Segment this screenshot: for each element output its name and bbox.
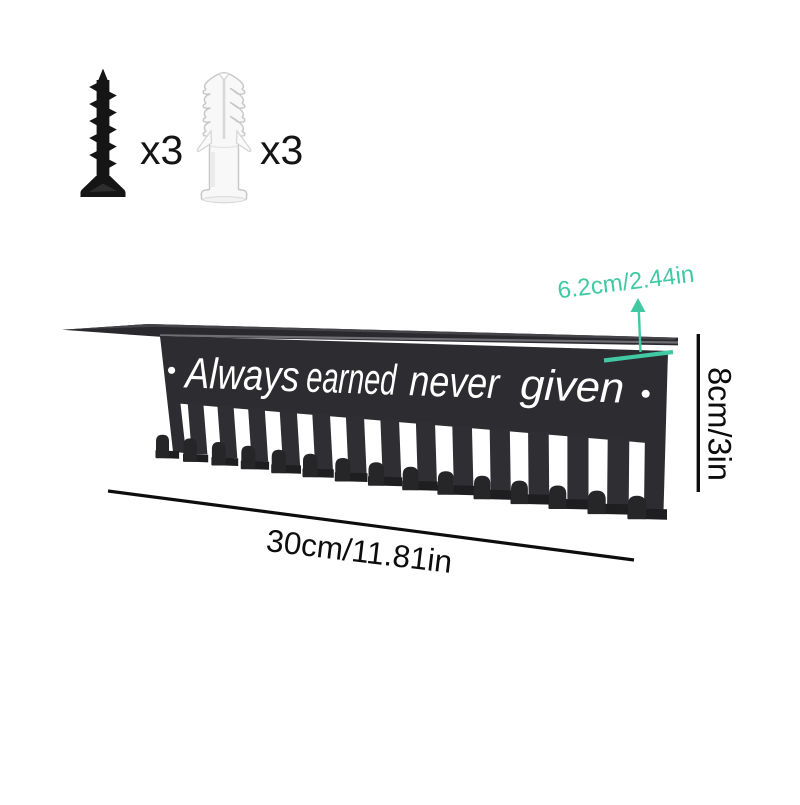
svg-text:given: given	[519, 361, 625, 413]
svg-text:x3: x3	[140, 127, 183, 173]
svg-text:x3: x3	[260, 127, 303, 173]
svg-text:never: never	[408, 357, 501, 408]
svg-text:Always: Always	[182, 349, 300, 401]
svg-text:8cm/3in: 8cm/3in	[702, 367, 738, 481]
svg-text:earned: earned	[306, 354, 399, 405]
